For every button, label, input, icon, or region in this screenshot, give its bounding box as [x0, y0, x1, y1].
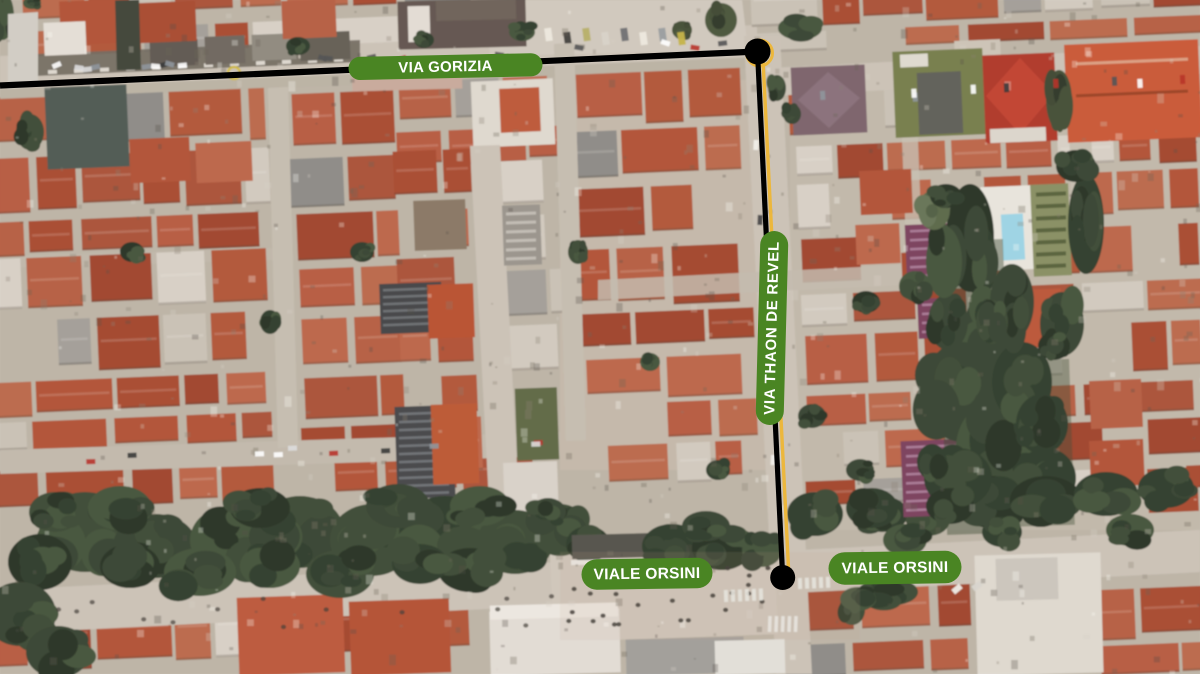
svg-text:VIA GORIZIA: VIA GORIZIA: [398, 58, 493, 77]
svg-text:VIALE ORSINI: VIALE ORSINI: [841, 559, 948, 577]
svg-text:VIALE ORSINI: VIALE ORSINI: [593, 565, 700, 583]
